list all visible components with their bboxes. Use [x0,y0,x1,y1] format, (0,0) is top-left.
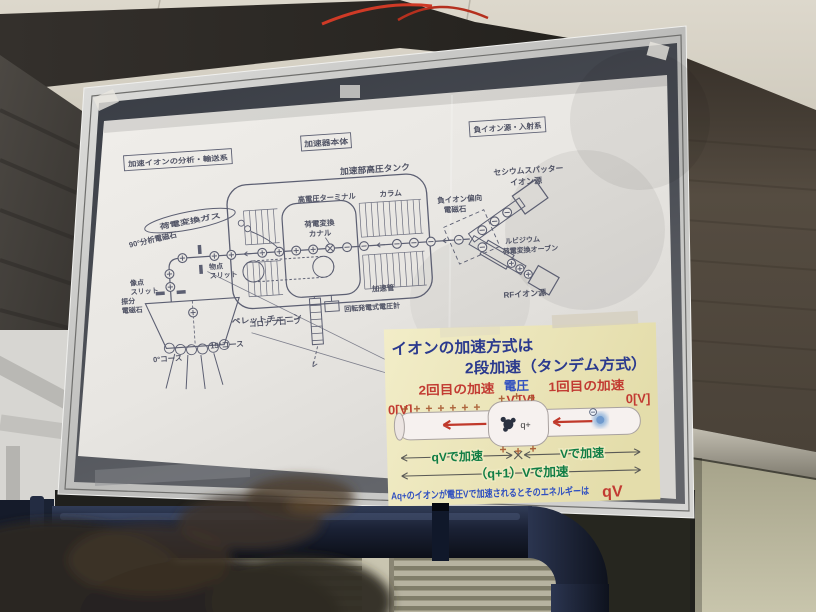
bottom-right-wall [686,458,816,612]
voltage-label: 電圧 [504,379,530,394]
machine-room-photo: 加速イオンの分析・輸送系 加速器本体 負イオン源・入射系 加速部高圧タンク 高電… [0,0,816,612]
v-accel-label: Vで加速 [560,445,604,461]
ion-charge-label: q+ [520,420,531,430]
canal-label-1: 荷電変換 [303,217,335,229]
column-label: カラム [379,188,402,198]
second-accel-label: 2回目の加速 [418,381,495,398]
energy-value: qV [602,483,623,501]
qv-accel-label: qVで加速 [431,448,483,464]
charge-exchange-canal-symbol [325,244,334,253]
zero-v-right: 0[V] [626,391,651,407]
q1v-accel-label: （q+1）Vで加速 [474,464,569,481]
first-accel-label: 1回目の加速 [548,377,625,394]
accel-tube-label: 加速管 [371,282,396,294]
yellow-note: イオンの加速方式は 2段加速（タンデム方式） 2回目の加速 電圧 1回目の加速 … [384,322,661,506]
pipe-vertical [551,584,609,612]
canal-label-2: カナル [309,228,333,239]
paper-shading [570,50,710,190]
deflect-label-2: 電磁石 [443,203,467,215]
cs-label-2: イオン源 [510,175,543,187]
tape [340,85,360,98]
